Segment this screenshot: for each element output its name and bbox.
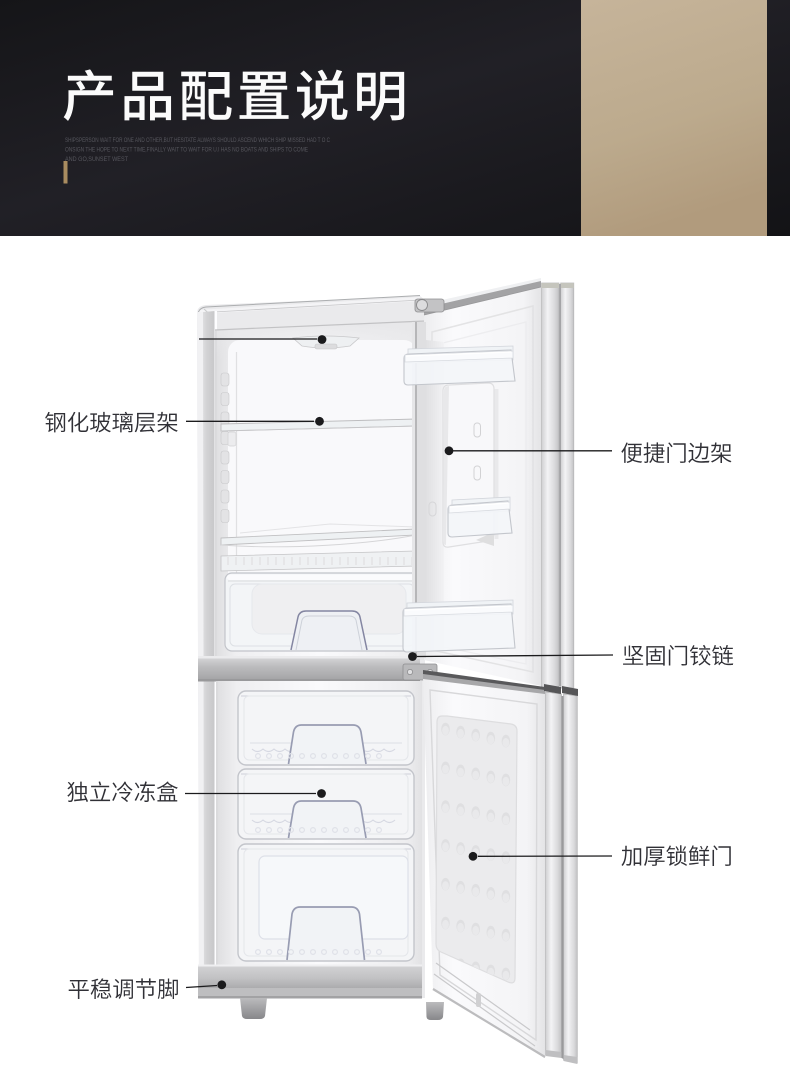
svg-text:SHIPSPERSON WAIT FOR ONE AND O: SHIPSPERSON WAIT FOR ONE AND OTHER,BUT H… [65,137,330,144]
svg-text:ONSIGN THE HOPE TO NEXT TIME,F: ONSIGN THE HOPE TO NEXT TIME,FINALLY WAI… [65,147,308,154]
svg-text:AND GO,SUNSET WEST: AND GO,SUNSET WEST [65,156,128,163]
